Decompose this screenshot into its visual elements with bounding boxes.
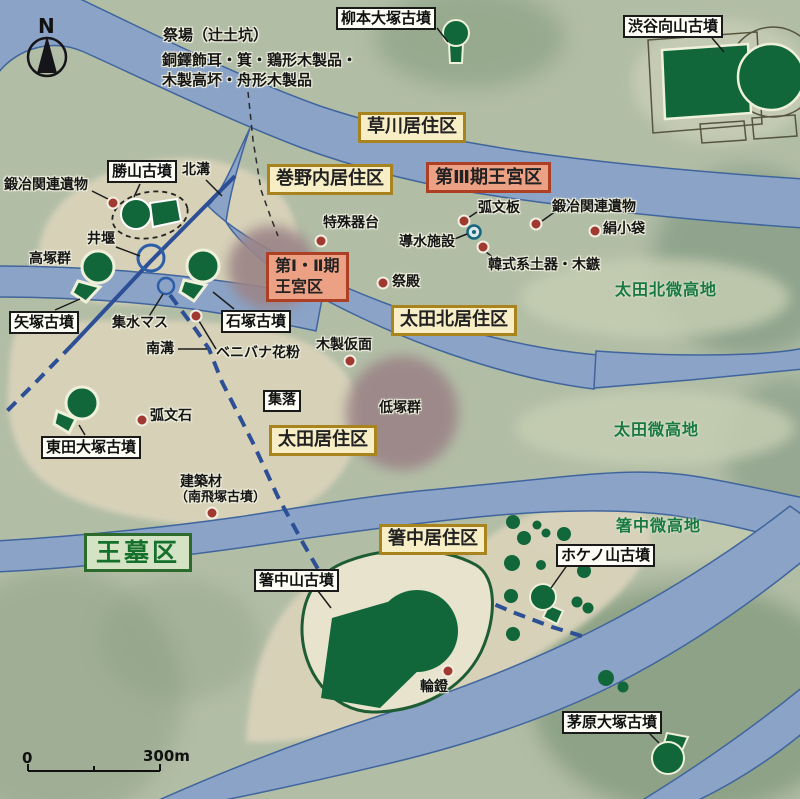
label-katsuyama-kofun: 勝山古墳 xyxy=(107,160,177,183)
label-settlement: 集落 xyxy=(263,390,301,412)
label-ota-north-highland: 太田北微高地 xyxy=(615,280,717,300)
label-ota-north-district: 太田北居住区 xyxy=(391,305,517,336)
annotation-weir: 井堰 xyxy=(87,231,115,249)
scale-distance-label: 300m xyxy=(143,747,190,766)
label-ishizuka-kofun: 石塚古墳 xyxy=(221,310,291,333)
annotation-wooden-mask: 木製仮面 xyxy=(316,337,372,355)
annotation-artifact-list-line1: 銅鐸飾耳・箕・鶏形木製品・ xyxy=(162,51,357,70)
label-yanagimoto-otsuka-kofun: 柳本大塚古墳 xyxy=(336,7,436,30)
label-low-mound-group: 低塚群 xyxy=(379,400,421,418)
annotation-arc-patterned-board: 弧文板 xyxy=(478,200,520,218)
annotation-ring-stirrup: 輪鐙 xyxy=(420,679,448,697)
label-phase3-palace-district: 第Ⅲ期王宮区 xyxy=(426,162,551,193)
site-map: N 祭場（辻土坑） 銅鐸飾耳・箕・鶏形木製品・ 木製高坏・舟形木製品 柳本大塚古… xyxy=(0,0,800,799)
label-yazuka-kofun: 矢塚古墳 xyxy=(9,311,79,334)
annotation-ritual-site: 祭場（辻土坑） xyxy=(163,26,268,45)
annotation-silk-pouch: 絹小袋 xyxy=(603,221,645,239)
annotation-smithing-remains-left: 鍛冶関連遺物 xyxy=(4,177,88,195)
compass-icon xyxy=(28,36,66,76)
annotation-special-vessel-stand: 特殊器台 xyxy=(323,215,379,233)
label-higaida-otsuka-kofun: 東田大塚古墳 xyxy=(41,436,141,459)
annotation-north-ditch: 北溝 xyxy=(182,162,210,180)
label-hashinakayama-kofun: 箸中山古墳 xyxy=(254,569,339,592)
annotation-water-conduit-facility: 導水施設 xyxy=(399,234,455,252)
scale-zero-label: 0 xyxy=(22,749,32,768)
label-ota-highland: 太田微高地 xyxy=(614,420,699,440)
annotation-building-material-line2: （南飛塚古墳） xyxy=(175,490,266,506)
annotation-arc-patterned-stone: 弧文石 xyxy=(150,408,192,426)
annotation-korean-style-pottery: 韓式系土器・木鏃 xyxy=(488,257,600,275)
annotation-ritual-hall: 祭殿 xyxy=(392,274,420,292)
label-ota-district: 太田居住区 xyxy=(269,425,377,456)
phase12-line1: 第Ⅰ・Ⅱ期 xyxy=(275,256,340,277)
annotation-water-collecting-box: 集水マス xyxy=(112,315,168,333)
annotation-smithing-remains-right: 鍛冶関連遺物 xyxy=(552,199,636,217)
annotation-building-material-line1: 建築材 xyxy=(180,474,222,492)
label-high-mound-group: 高塚群 xyxy=(29,251,71,269)
label-shibutani-mukaiyama-kofun: 渋谷向山古墳 xyxy=(623,15,723,38)
annotation-south-ditch: 南溝 xyxy=(146,341,174,359)
label-phase12-palace-district: 第Ⅰ・Ⅱ期 王宮区 xyxy=(266,252,349,302)
label-chihara-otsuka-kofun: 茅原大塚古墳 xyxy=(562,711,662,734)
label-hashinaka-district: 箸中居住区 xyxy=(379,524,487,555)
label-hashinaka-highland: 箸中微高地 xyxy=(616,516,701,536)
annotation-safflower-pollen: ベニバナ花粉 xyxy=(216,345,300,363)
label-makinouchi-district: 巻野内居住区 xyxy=(267,164,393,195)
phase12-line2: 王宮区 xyxy=(275,277,340,298)
compass-north-label: N xyxy=(38,14,55,39)
label-hokenoyama-kofun: ホケノ山古墳 xyxy=(556,544,655,567)
annotation-artifact-list-line2: 木製高坏・舟形木製品 xyxy=(162,71,312,90)
label-kusakawa-district: 草川居住区 xyxy=(358,112,466,143)
label-royal-tomb-district: 王墓区 xyxy=(84,533,192,572)
